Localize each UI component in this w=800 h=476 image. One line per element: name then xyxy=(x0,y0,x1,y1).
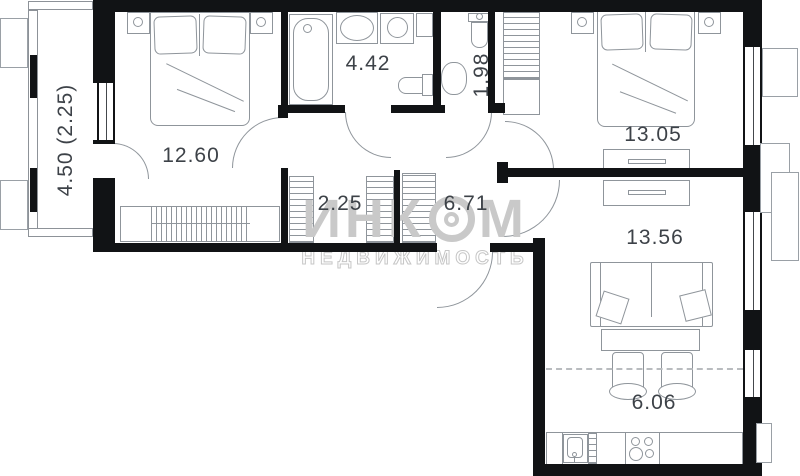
exterior-wall-right xyxy=(743,0,762,47)
balcony-frame xyxy=(30,55,37,98)
wall-bathroom-bottom xyxy=(281,105,345,113)
exterior-box xyxy=(771,172,799,261)
exterior-wall-bottom-upper xyxy=(93,243,437,252)
stove-burner-icon xyxy=(645,449,654,458)
wc-sink xyxy=(441,62,467,95)
lamp-icon xyxy=(577,17,587,27)
pillow xyxy=(202,15,246,54)
exterior-box xyxy=(0,180,28,230)
wall-stub xyxy=(278,105,288,118)
area-label-closet: 2.25 xyxy=(318,192,363,216)
window-bedroom1 xyxy=(97,83,115,140)
wardrobe xyxy=(503,12,540,79)
wardrobe xyxy=(289,176,314,243)
faucet-stem xyxy=(574,456,575,463)
door-arc-bathroom xyxy=(345,112,391,158)
balcony-frame xyxy=(30,168,37,212)
washer-drum-icon xyxy=(387,17,408,38)
wall-bathroom-bottom xyxy=(391,105,445,113)
area-label-living-room: 13.56 xyxy=(626,226,684,250)
pillow xyxy=(153,15,197,54)
coffee-table xyxy=(601,329,700,351)
bed-center-line xyxy=(645,12,646,52)
lamp-icon xyxy=(133,17,143,27)
dresser-handle xyxy=(628,159,666,164)
wall-closet-hallway xyxy=(394,170,400,252)
window xyxy=(743,350,762,397)
wall-bedroom2-living xyxy=(497,168,743,177)
lamp-icon xyxy=(256,17,266,27)
door-arc-living-room xyxy=(503,180,560,237)
door-arc-wc xyxy=(446,112,492,158)
sink-basin xyxy=(340,15,374,41)
door-arc-bedroom2 xyxy=(505,121,554,170)
toilet-tank xyxy=(422,74,433,96)
pillow xyxy=(600,13,643,50)
wall-balcony xyxy=(93,140,115,144)
sofa-divider-line xyxy=(651,262,652,317)
toilet-bowl xyxy=(471,22,488,48)
counter-divider xyxy=(659,432,660,465)
area-label-kitchen: 6.06 xyxy=(632,391,677,415)
dish-rack xyxy=(588,433,597,464)
bathroom-cabinet xyxy=(416,13,433,37)
stove-burner-icon xyxy=(629,447,643,461)
wardrobe-rail xyxy=(151,223,250,224)
stove-burner-icon xyxy=(631,437,640,446)
wall-bathroom-wc xyxy=(433,12,441,105)
wardrobe xyxy=(366,176,394,243)
balcony-glazing-bottom xyxy=(28,228,93,237)
exterior-wall-top xyxy=(93,0,762,12)
area-label-bedroom2: 13.05 xyxy=(624,123,682,147)
counter-divider xyxy=(625,432,626,465)
dresser-handle xyxy=(628,190,666,195)
exterior-box xyxy=(762,48,798,97)
area-label-bathroom: 4.42 xyxy=(346,52,391,76)
area-label-hallway: 6.71 xyxy=(444,192,489,216)
wall-bathroom xyxy=(281,12,288,105)
kitchen-zone-divider xyxy=(546,368,743,370)
bed-center-line xyxy=(199,14,200,56)
window xyxy=(743,47,762,145)
stove-burner-icon xyxy=(644,437,653,446)
balcony-glazing-top xyxy=(28,1,93,10)
wall-bedroom1-closet xyxy=(281,168,288,243)
lamp-icon xyxy=(704,17,714,27)
exterior-wall-right xyxy=(743,310,762,350)
area-label-wc: 1.98 xyxy=(470,53,494,98)
exterior-wall-left-wing xyxy=(533,238,545,476)
area-label-bedroom1: 12.60 xyxy=(162,144,220,168)
door-arc-entrance xyxy=(437,252,493,308)
wardrobe-shelf xyxy=(503,79,540,115)
wall-balcony xyxy=(93,12,115,83)
pillow xyxy=(649,13,692,50)
flush-button-icon xyxy=(476,13,483,20)
wall-balcony xyxy=(93,178,115,243)
bathtub-drain-icon xyxy=(303,24,312,33)
exterior-box xyxy=(0,18,28,68)
door-arc-balcony xyxy=(113,143,149,179)
wardrobe-hatch xyxy=(151,207,250,241)
window xyxy=(743,212,762,310)
toilet-bowl xyxy=(398,77,423,94)
exterior-box xyxy=(756,423,772,463)
floor-plan: ИНК М НЕДВИЖИМОСТЬ 4.50 (2.25) 12.60 4. xyxy=(0,0,800,476)
exterior-wall-bottom-upper xyxy=(490,243,545,252)
wall-stub xyxy=(488,103,505,113)
exterior-wall-bottom xyxy=(533,464,762,476)
wardrobe xyxy=(402,173,436,243)
area-label-balcony: 4.50 (2.25) xyxy=(54,84,78,197)
